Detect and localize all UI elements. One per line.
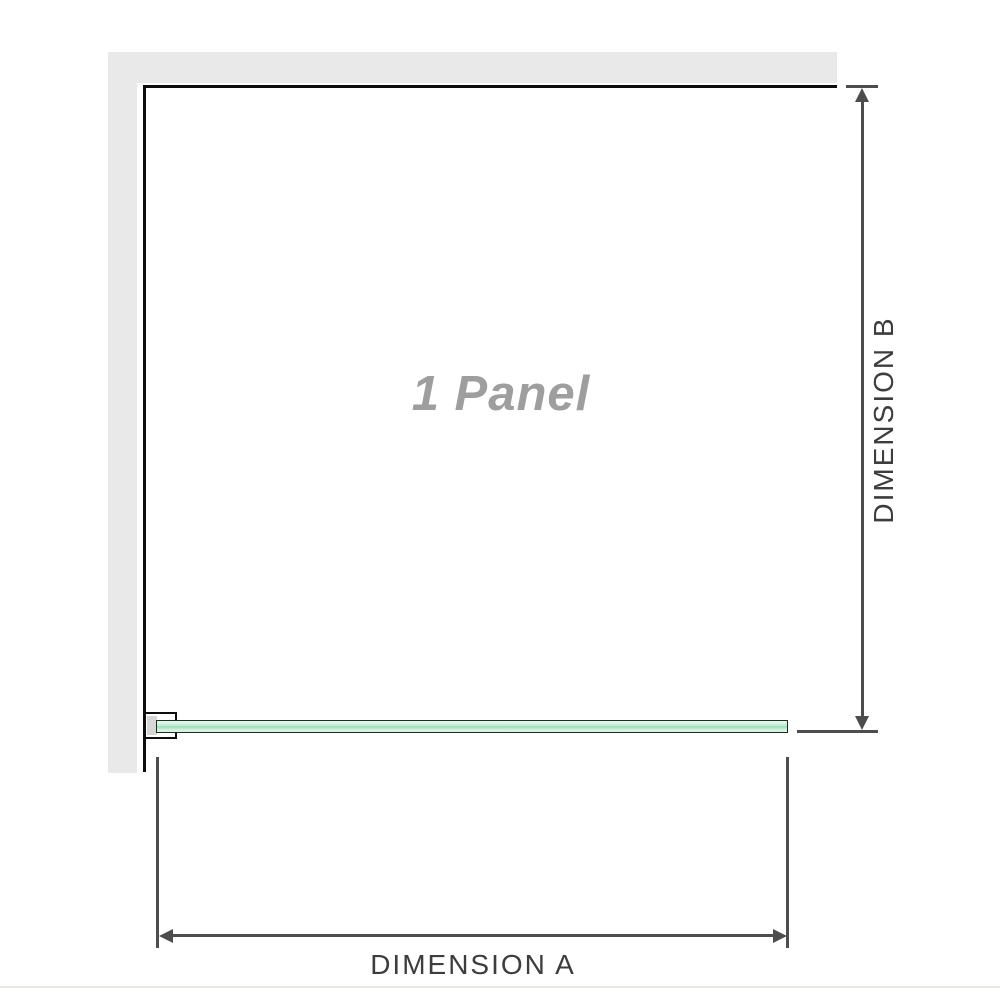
dimension-a-label: DIMENSION A — [158, 949, 788, 981]
wall-top-strip — [108, 52, 837, 83]
arrow-down-icon — [855, 716, 869, 730]
dimension-b-line — [861, 98, 864, 719]
arrow-right-icon — [773, 929, 787, 943]
panel-watermark-label: 1 Panel — [351, 366, 651, 422]
dimension-b-bottom-tick — [797, 730, 878, 733]
dimension-a-line — [170, 934, 776, 937]
panel-dimension-diagram: 1 Panel DIMENSION B DIMENSION A — [0, 0, 1000, 1000]
dimension-b-label: DIMENSION B — [868, 280, 900, 560]
dimension-a-right-extension-line — [786, 757, 789, 948]
wall-left-strip — [108, 52, 137, 773]
bottom-hairline — [0, 986, 1000, 988]
arrow-up-icon — [855, 88, 869, 102]
glass-panel-bar — [156, 720, 788, 733]
dimension-a-left-extension-line — [156, 757, 159, 948]
panel-left-edge-line — [143, 85, 146, 772]
panel-top-edge-line — [143, 85, 837, 88]
arrow-left-icon — [159, 929, 173, 943]
